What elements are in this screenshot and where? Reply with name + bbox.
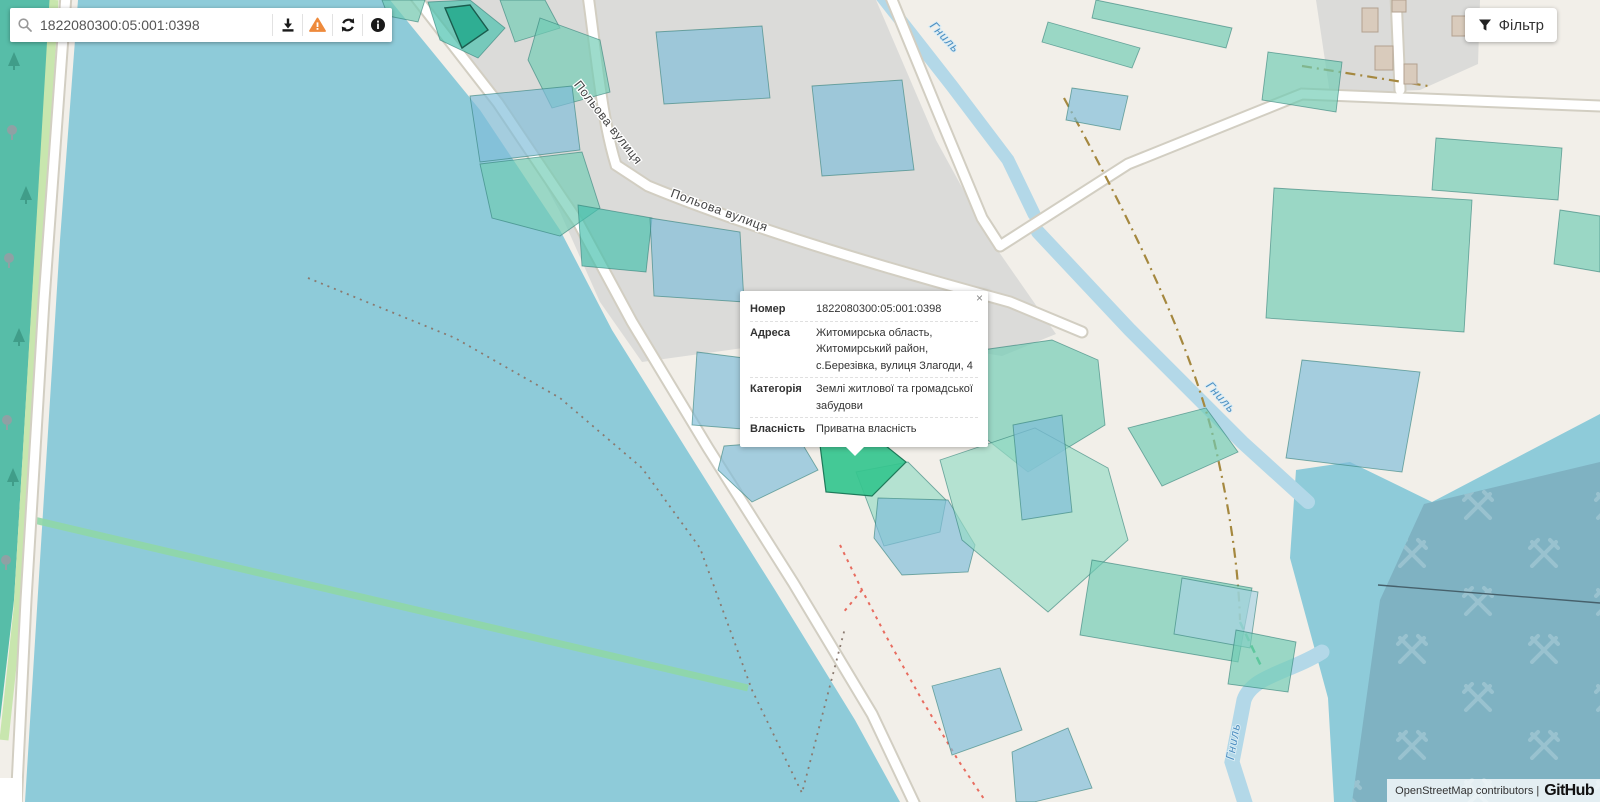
github-logo[interactable]: GitHub (1544, 782, 1594, 800)
popup-row-label: Номер (750, 301, 816, 318)
map-application: Польова вулиця Польова вулиця Гниль Гнил… (0, 0, 1600, 802)
parcel-info-popup: × Номер 1822080300:05:001:0398 Адреса Жи… (740, 291, 988, 447)
map-corner-notch (0, 778, 22, 802)
search-icon (10, 17, 40, 33)
filter-button-label: Фільтр (1499, 17, 1544, 34)
popup-row-address: Адреса Житомирська область, Житомирський… (750, 322, 978, 379)
filter-button[interactable]: Фільтр (1465, 8, 1557, 42)
popup-row-label: Власність (750, 421, 816, 438)
info-icon (370, 17, 386, 33)
map-attribution: OpenStreetMap contributors | GitHub (1387, 779, 1600, 802)
info-button[interactable] (362, 14, 392, 36)
popup-close-button[interactable]: × (976, 292, 983, 304)
search-input[interactable] (40, 17, 272, 33)
download-icon (280, 17, 296, 33)
popup-row-category: Категорія Землі житлової та громадської … (750, 378, 978, 418)
warning-button[interactable] (302, 14, 332, 36)
refresh-icon (340, 17, 356, 33)
popup-row-value: Приватна власність (816, 421, 978, 438)
popup-row-label: Адреса (750, 325, 816, 375)
popup-row-label: Категорія (750, 381, 816, 414)
popup-row-ownership: Власність Приватна власність (750, 418, 978, 441)
funnel-icon (1478, 18, 1492, 32)
popup-row-value: Житомирська область, Житомирський район,… (816, 325, 978, 375)
popup-row-value: 1822080300:05:001:0398 (816, 301, 978, 318)
refresh-button[interactable] (332, 14, 362, 36)
popup-row-value: Землі житлової та громадської забудови (816, 381, 978, 414)
popup-row-number: Номер 1822080300:05:001:0398 (750, 298, 978, 322)
osm-attribution-link[interactable]: OpenStreetMap contributors | (1395, 785, 1539, 797)
search-bar (10, 8, 392, 42)
download-button[interactable] (272, 14, 302, 36)
warning-icon (309, 17, 326, 33)
